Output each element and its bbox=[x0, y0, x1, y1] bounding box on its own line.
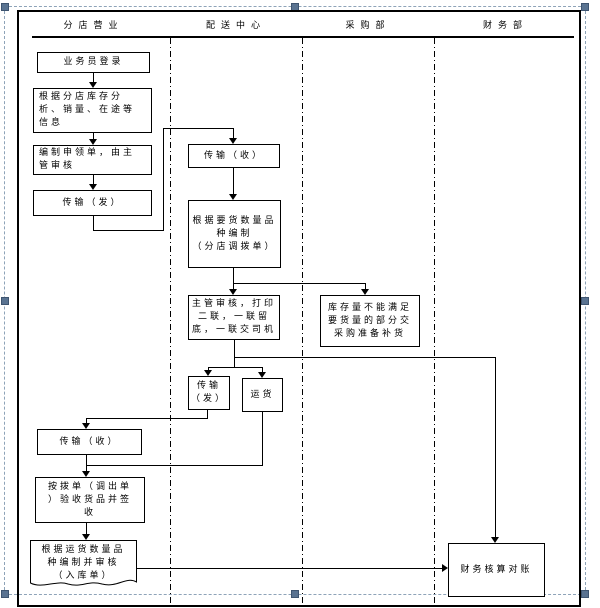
connector-line bbox=[163, 128, 234, 129]
connector-line bbox=[233, 128, 234, 138]
lane-header-branch: 分店营业 bbox=[17, 19, 170, 33]
arrowhead-down bbox=[361, 289, 369, 295]
arrowhead-down bbox=[89, 139, 97, 145]
arrowhead-down bbox=[89, 82, 97, 88]
lane-separator-1 bbox=[170, 38, 171, 603]
node-login: 业务员登录 bbox=[37, 52, 150, 73]
connector-line bbox=[208, 367, 263, 368]
node-analyze: 根据分店库存分 析、销量、在途等 信息 bbox=[33, 88, 152, 133]
arrowhead-down bbox=[491, 537, 499, 543]
arrowhead-down bbox=[204, 370, 212, 376]
lane-header-purchasing: 采购部 bbox=[302, 19, 434, 33]
node-send2: 传输 （发） bbox=[188, 376, 230, 410]
node-ship: 运货 bbox=[242, 378, 283, 412]
lane-separator-2 bbox=[302, 38, 303, 603]
selection-handle-bottom-right[interactable] bbox=[581, 590, 589, 598]
connector-line bbox=[262, 412, 263, 465]
connector-line bbox=[233, 268, 234, 289]
selection-handle-middle-left[interactable] bbox=[1, 297, 9, 305]
node-warehouse-doc: 根据运货数量品 种编制并审核 （入库单） bbox=[30, 540, 137, 592]
connector-line bbox=[93, 230, 164, 231]
connector-line bbox=[234, 357, 495, 358]
selection-handle-top-left[interactable] bbox=[1, 3, 9, 11]
lane-separator-3 bbox=[434, 38, 435, 603]
node-recv1: 传输（收） bbox=[188, 144, 280, 168]
arrowhead-down bbox=[229, 289, 237, 295]
flowchart-canvas: 分店营业 配送中心 采购部 财务部 业务员登录 根据分店库存分 析、销量、在途等… bbox=[0, 0, 600, 608]
arrowhead-down bbox=[82, 534, 90, 540]
connector-line bbox=[86, 455, 87, 471]
selection-handle-middle-right[interactable] bbox=[581, 297, 589, 305]
node-make-transfer: 根据要货数量品 种编制 （分店调拨单） bbox=[188, 200, 281, 268]
arrowhead-down bbox=[82, 423, 90, 429]
node-review-print: 主管审核，打印 二联，一联留 底，一联交司机 bbox=[188, 295, 280, 340]
arrowhead-down bbox=[89, 184, 97, 190]
header-rule bbox=[32, 36, 574, 38]
lane-header-finance: 财务部 bbox=[434, 19, 577, 33]
connector-line bbox=[93, 175, 94, 184]
connector-line bbox=[137, 568, 442, 569]
node-send1: 传输（发） bbox=[33, 190, 152, 216]
connector-line bbox=[233, 283, 365, 284]
node-recv2: 传输（收） bbox=[37, 429, 142, 455]
lane-header-distribution: 配送中心 bbox=[170, 19, 302, 33]
arrowhead-down bbox=[82, 471, 90, 477]
connector-line bbox=[207, 410, 208, 418]
connector-line bbox=[234, 340, 235, 367]
arrowhead-down bbox=[229, 194, 237, 200]
node-shortage: 库存量不能满足 要货量的部分交 采购准备补货 bbox=[320, 295, 420, 347]
connector-line bbox=[495, 357, 496, 537]
arrowhead-down bbox=[258, 372, 266, 378]
connector-line bbox=[163, 128, 164, 231]
node-prepare: 编制申领单，由主 管审核 bbox=[33, 145, 152, 175]
connector-line bbox=[233, 168, 234, 194]
connector-line bbox=[86, 418, 208, 419]
selection-handle-bottom-left[interactable] bbox=[1, 590, 9, 598]
connector-line bbox=[93, 73, 94, 82]
arrowhead-down bbox=[229, 138, 237, 144]
selection-handle-top-right[interactable] bbox=[581, 3, 589, 11]
node-reconcile: 财务核算对账 bbox=[448, 543, 545, 597]
connector-line bbox=[86, 465, 263, 466]
arrowhead-right bbox=[442, 564, 448, 572]
node-inspect: 按拨单（调出单 ）验收货品并签 收 bbox=[35, 477, 145, 523]
connector-line bbox=[93, 216, 94, 230]
connector-line bbox=[86, 523, 87, 534]
